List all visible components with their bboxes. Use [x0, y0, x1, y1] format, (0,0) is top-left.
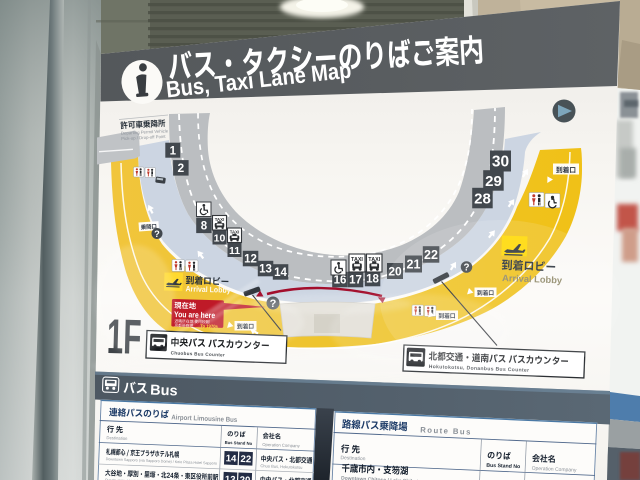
svg-text:28: 28: [474, 190, 491, 207]
svg-text:14: 14: [274, 267, 287, 279]
svg-text:1: 1: [170, 145, 177, 157]
svg-text:2: 2: [177, 161, 184, 175]
svg-text:12: 12: [244, 254, 257, 266]
svg-text:20: 20: [239, 475, 250, 480]
svg-text:29: 29: [485, 173, 502, 190]
svg-text:22: 22: [240, 454, 251, 465]
svg-text:18: 18: [366, 274, 379, 286]
svg-text:11: 11: [229, 245, 240, 257]
svg-text:13: 13: [225, 474, 236, 480]
svg-text:14: 14: [225, 453, 237, 464]
svg-text:Bus: Bus: [150, 383, 178, 400]
svg-text:16: 16: [334, 275, 347, 287]
svg-text:Destination: Destination: [106, 435, 128, 441]
svg-text:?: ?: [154, 229, 160, 239]
svg-text:17: 17: [349, 275, 362, 287]
svg-text:13: 13: [259, 264, 272, 276]
svg-text:10: 10: [214, 232, 226, 244]
svg-text:Destination: Destination: [340, 455, 365, 462]
svg-text:8: 8: [201, 220, 208, 232]
svg-text:Arrival Lobby: Arrival Lobby: [185, 284, 231, 295]
svg-text:30: 30: [492, 154, 509, 171]
svg-text:TAXI: TAXI: [230, 230, 240, 235]
svg-text:TAXI: TAXI: [215, 217, 225, 222]
